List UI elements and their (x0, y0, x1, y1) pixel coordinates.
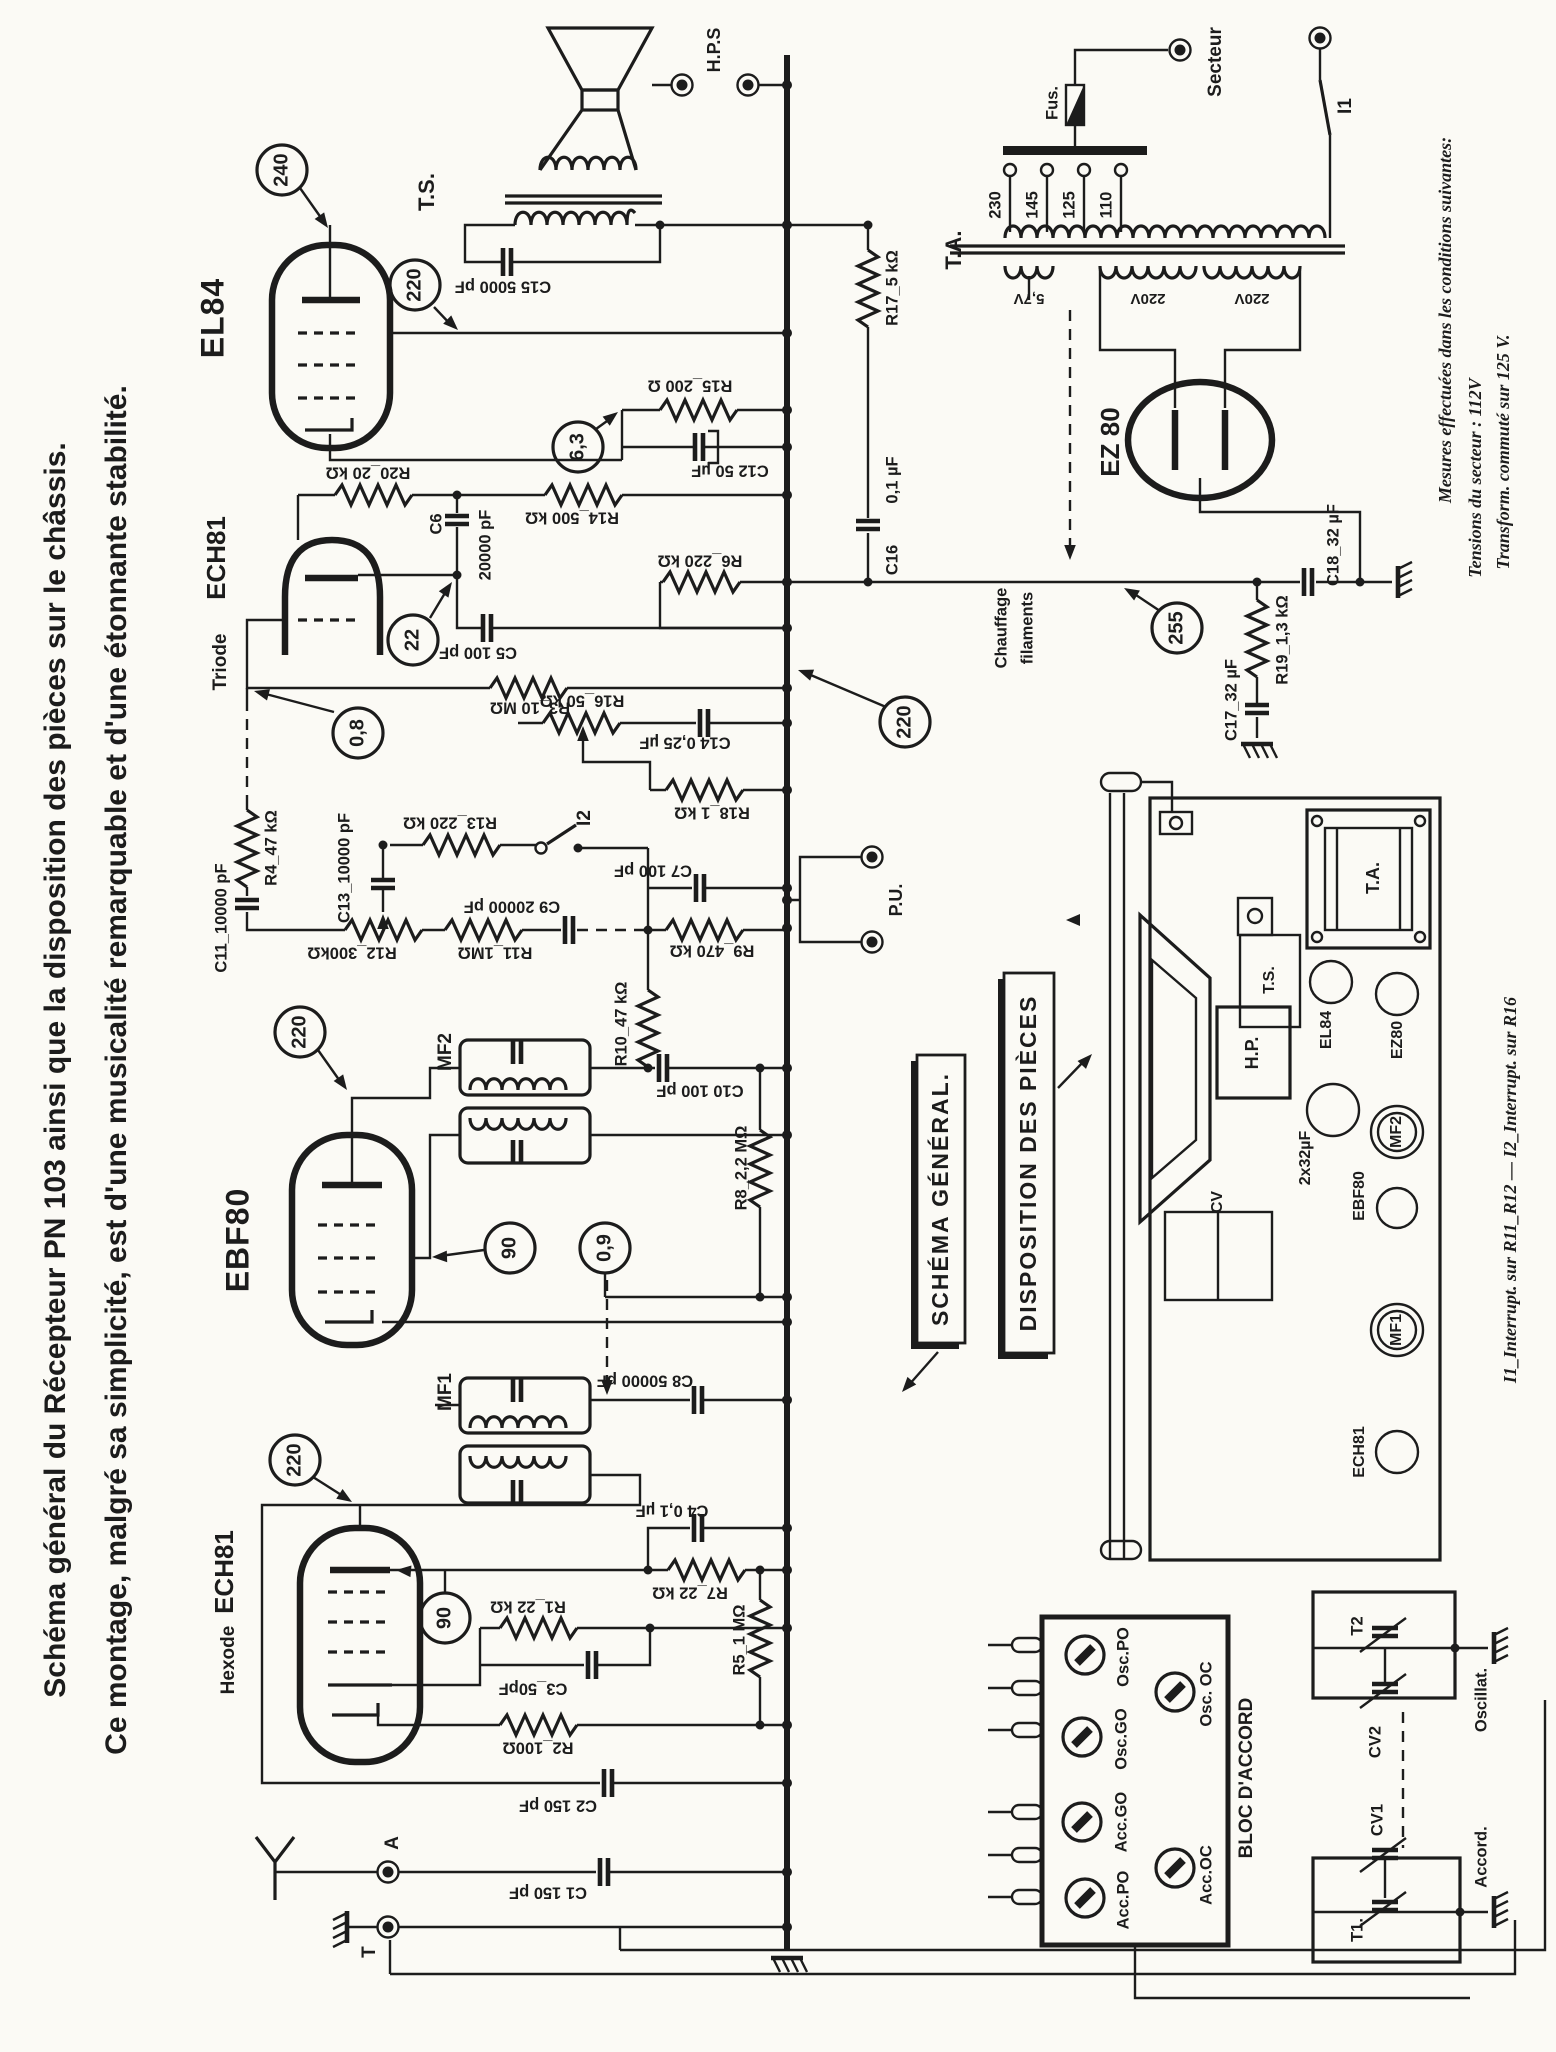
chassis-ta-label: T.A. (1363, 862, 1383, 894)
c5-label: C5 100 pF (439, 644, 517, 662)
chassis-bus-line (771, 55, 807, 1972)
volume-row (518, 709, 787, 800)
knob-acc-po-icon (1066, 1879, 1104, 1917)
measure-triode-anode-value: 22 (401, 629, 423, 651)
chassis-cv-label: CV (1209, 1191, 1226, 1214)
r20-label: R20_20 kΩ (326, 464, 411, 482)
c11-label: C11_10000 pF (212, 863, 230, 972)
r18-label: R18_1 kΩ (674, 804, 750, 822)
schema-general-label: SCHÉMA GÉNÉRAL. (926, 1072, 953, 1326)
el84-label: EL84 (194, 278, 230, 358)
mf1-transformer (435, 1378, 590, 1503)
knob-acc-oc-label: Acc.OC (1197, 1845, 1215, 1905)
interrupt-note: I1_Interrupt. sur R11_R12 — I2_Interrupt… (1500, 997, 1520, 1384)
tap-145: 145 (1023, 191, 1041, 219)
measure-detector-value: 220 (893, 705, 915, 738)
page-title-line2: Ce montage, malgré sa simplicité, est d'… (100, 385, 133, 1755)
r10-label: R10_47 kΩ (612, 982, 630, 1067)
knob-osc-oc-label: Osc. OC (1197, 1661, 1215, 1726)
r7-label: R7_22 kΩ (652, 1584, 728, 1602)
fuse-icon (1066, 50, 1168, 146)
cv1-label: CV1 (1368, 1804, 1386, 1836)
triode-label: Triode (210, 633, 231, 690)
pu-terminals (787, 847, 883, 953)
c2-label: C2 150 pF (519, 1797, 597, 1815)
knob-osc-oc-icon (1156, 1673, 1194, 1711)
speaker-icon (548, 28, 652, 110)
measure-ebf80-anode (275, 1007, 352, 1093)
triode-anode-wire (358, 575, 457, 618)
ez80-label: EZ 80 (1095, 407, 1125, 476)
chassis-cap-label: 2x32µF (1297, 1130, 1314, 1185)
page-title-line1: Schéma général du Récepteur PN 103 ainsi… (39, 442, 72, 1698)
dial-pointer-icon (1066, 914, 1080, 926)
chassis-mf2-label: MF2 (1388, 1116, 1405, 1148)
r6-label: R6_220 kΩ (658, 552, 743, 570)
earth-icon (333, 1911, 787, 1947)
measure-ht (1121, 583, 1202, 653)
disposition-box (998, 973, 1096, 1359)
c6-label: C6 (427, 513, 445, 534)
i2-label: I2 (574, 810, 595, 826)
r13-label: R13_220 kΩ (403, 814, 497, 832)
hexode-label: Hexode (218, 1626, 239, 1695)
t2-label: T2 (1348, 1616, 1366, 1635)
mf2-wiring (412, 990, 787, 1258)
ech81-triode-label: ECH81 (201, 516, 231, 600)
c6-value: 20000 pF (476, 510, 494, 581)
bloc-accord-box (988, 1617, 1228, 1945)
r19-c17-branch (1241, 582, 1277, 758)
disposition-label: DISPOSITION DES PIÈCES (1014, 995, 1041, 1332)
earth-terminal (378, 1917, 399, 1938)
oscillat-label: Oscillat. (1472, 1668, 1490, 1732)
ez80-tube (1100, 270, 1360, 582)
c18-label: C18_32 µF (1324, 504, 1342, 586)
antenna-label: A (382, 1836, 403, 1850)
r1-label: R1_22 kΩ (490, 1598, 566, 1616)
r16-label: R16_50 kΩ (540, 692, 625, 710)
t1-label: T1. (1348, 1918, 1366, 1942)
measure-ebf80-grid-value: 0,9 (593, 1234, 615, 1262)
chauffage-label: Chauffage (992, 588, 1010, 669)
secteur-label: Secteur (1205, 27, 1226, 97)
chassis-mf1-label: MF1 (1388, 1314, 1405, 1346)
measure-el84-screen-value: 220 (403, 268, 425, 301)
c4-label: C4 0,1 µF (636, 1502, 709, 1520)
ts-label: T.S. (414, 173, 439, 211)
mf1-label: MF1 (435, 1373, 456, 1411)
knob-acc-po-label: Acc.PO (1114, 1870, 1132, 1929)
el84-grid-wire (390, 307, 787, 334)
measure-hexode-screen-value: 90 (433, 1607, 455, 1629)
schematic-drawing: Schéma général du Récepteur PN 103 ainsi… (0, 0, 1556, 2052)
mesures-note-3: Transform. commuté sur 125 V. (1493, 334, 1513, 569)
c15-label: C15 5000 pF (455, 278, 551, 296)
hexode-tube (300, 1505, 420, 1762)
mf2-transformer (460, 1040, 590, 1163)
mf2-label: MF2 (435, 1033, 456, 1071)
r14-label: R14_500 kΩ (525, 509, 619, 527)
chassis-el84-label: EL84 (1318, 1011, 1335, 1049)
r15-label: R15_200 Ω (648, 377, 733, 395)
r8-label: R8_2,2 MΩ (732, 1126, 750, 1211)
knob-acc-oc-icon (1156, 1849, 1194, 1887)
knob-osc-go-icon (1063, 1718, 1101, 1756)
pu-label: P.U. (886, 884, 906, 917)
r3-row (247, 620, 787, 712)
measure-el84-anode (257, 145, 333, 231)
chassis-ech81-label: ECH81 (1351, 1426, 1368, 1478)
c17-label: C17_32 µF (1222, 659, 1240, 741)
mesures-note-2: Tensions du secteur : 112V (1465, 376, 1485, 577)
cv2-label: CV2 (1366, 1726, 1384, 1758)
c13-label: C13_10000 pF (335, 813, 353, 923)
r17-label: R17_5 kΩ (883, 250, 901, 326)
el84-tube (272, 225, 390, 448)
accord-label: Accord. (1472, 1826, 1490, 1887)
switch-i2 (536, 825, 583, 854)
r5-label: R5_1 MΩ (730, 1604, 748, 1675)
r2-label: R2_100Ω (502, 1739, 573, 1757)
triode-tube (285, 540, 380, 655)
r19-label: R19_1,3 kΩ (1273, 595, 1291, 684)
antenna-terminal (378, 1862, 399, 1883)
chassis-ez80-label: EZ80 (1389, 1021, 1406, 1059)
tap-110: 110 (1097, 192, 1115, 219)
fus-label: Fus. (1043, 86, 1061, 120)
measure-triode-grid-value: 0,8 (346, 719, 368, 747)
knob-osc-po-label: Osc.PO (1114, 1627, 1132, 1687)
c12-label: C12 50 µF (691, 462, 768, 480)
measure-hexode-anode-value: 220 (283, 1443, 305, 1476)
ta-transformer (950, 146, 1345, 278)
antenna-icon (256, 1837, 377, 1900)
measure-ht-value: 255 (1165, 611, 1187, 644)
schematic-page: Schéma général du Récepteur PN 103 ainsi… (0, 0, 1556, 2052)
knob-osc-po-icon (1066, 1636, 1104, 1674)
r8-resistor (750, 1064, 770, 1302)
ts-wiring (465, 221, 787, 277)
c9-label: C9 20000 pF (464, 898, 560, 916)
hps-label: H.P.S (704, 28, 724, 73)
earth-label: T (359, 1946, 380, 1958)
hps-terminals (652, 75, 787, 96)
c1-label: C1 150 pF (509, 1884, 587, 1902)
switch-i1 (1310, 28, 1331, 239)
measure-el84-anode-value: 240 (270, 153, 292, 186)
c1-row (399, 1858, 787, 1886)
ht-rail (787, 562, 1412, 598)
c3-label: C3_50pF (499, 1680, 568, 1698)
mesures-note-1: Mesures effectuées dans les conditions s… (1435, 137, 1455, 504)
chassis-layout (1066, 773, 1440, 1560)
c8-label: C8 50000 pF (597, 1372, 693, 1390)
tap-230: 230 (986, 191, 1004, 219)
c16-value: 0,1 µF (883, 456, 901, 503)
measure-ebf80-anode-value: 220 (288, 1015, 310, 1048)
c16-label: C16 (883, 545, 901, 575)
winding-hv2: 220V (1234, 290, 1269, 307)
filaments-label: filaments (1018, 592, 1036, 664)
c7-label: C7 100 pF (614, 862, 692, 880)
measure-ebf80-screen-value: 90 (498, 1237, 520, 1259)
r12-label: R12_300kΩ (307, 944, 396, 962)
measure-heater-value: 6,3 (566, 433, 588, 461)
ech81-hexode-label: ECH81 (209, 1530, 239, 1614)
c10-label: C10 100 pF (656, 1082, 743, 1100)
i1-label: I1 (1335, 98, 1356, 114)
heater-arrow (1029, 276, 1076, 560)
winding-hv1: 220V (1130, 290, 1165, 307)
tap-125: 125 (1060, 191, 1078, 219)
chassis-ebf80-label: EBF80 (1351, 1171, 1368, 1221)
secteur-terminal (1170, 40, 1191, 61)
r9-label: R9_470 kΩ (670, 942, 755, 960)
c14-label: C14 0,25 µF (639, 734, 730, 752)
bloc-accord-title: BLOC D'ACCORD (1236, 1698, 1257, 1859)
ebf80-label: EBF80 (219, 1188, 255, 1293)
knob-acc-go-icon (1063, 1803, 1101, 1841)
ta-label: T.A. (941, 230, 966, 269)
r11-label: R11_1MΩ (458, 944, 533, 962)
knob-osc-go-label: Osc.GO (1112, 1708, 1130, 1770)
r17-c16-column (787, 221, 880, 587)
chassis-hp-label: H.P. (1242, 1037, 1262, 1070)
knob-acc-go-label: Acc.GO (1112, 1792, 1130, 1853)
chassis-ts-label: T.S. (1261, 966, 1278, 994)
ts-transformer (505, 110, 662, 225)
r6-row (660, 572, 787, 628)
r4-label: R4_47 kΩ (262, 810, 280, 886)
measure-hexode-screen (395, 1564, 470, 1643)
